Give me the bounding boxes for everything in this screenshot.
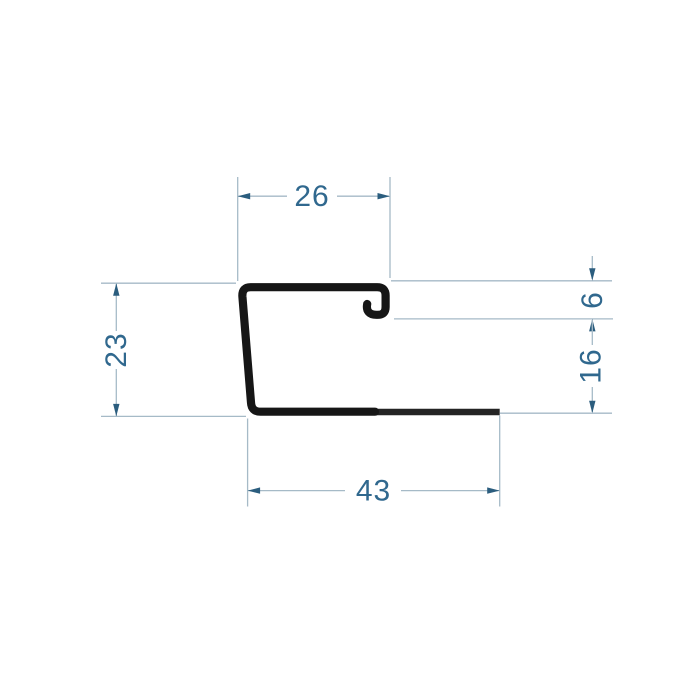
- dimension-label-right-lower: 16: [575, 348, 608, 383]
- profile-technical-drawing: 26 23 6 16: [0, 0, 700, 700]
- dimension-right-lower: 16: [500, 320, 612, 413]
- arrowhead-left: [238, 193, 251, 199]
- arrowhead-down: [589, 401, 595, 414]
- arrowhead-right: [378, 193, 391, 199]
- dimension-right-upper: 6: [391, 256, 613, 331]
- arrowhead-right: [487, 487, 500, 493]
- arrowhead-up: [113, 283, 119, 296]
- profile-path: [242, 287, 385, 412]
- dimension-left-height: 23: [100, 283, 246, 416]
- dimension-top-width: 26: [238, 177, 390, 281]
- arrowhead-left: [248, 487, 261, 493]
- arrowhead-down: [113, 404, 119, 417]
- dimension-label-bottom-width: 43: [356, 475, 391, 508]
- arrowhead-down: [589, 268, 595, 281]
- drawing-canvas: 26 23 6 16: [0, 0, 700, 700]
- dimension-bottom-width: 43: [248, 416, 500, 508]
- dimension-label-top-width: 26: [294, 180, 329, 213]
- dimension-label-right-upper: 6: [576, 291, 609, 309]
- profile-outline: [242, 287, 499, 412]
- dimension-label-left-height: 23: [100, 332, 133, 367]
